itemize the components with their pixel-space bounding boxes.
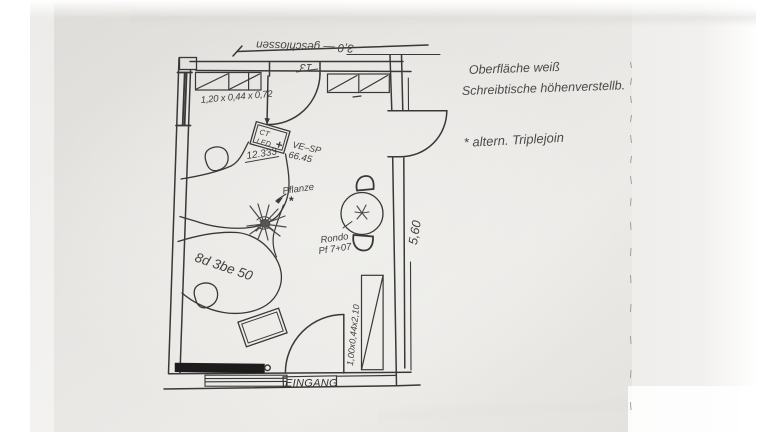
svg-text:EINGANG: EINGANG <box>285 378 338 390</box>
svg-text:*: * <box>289 194 294 208</box>
